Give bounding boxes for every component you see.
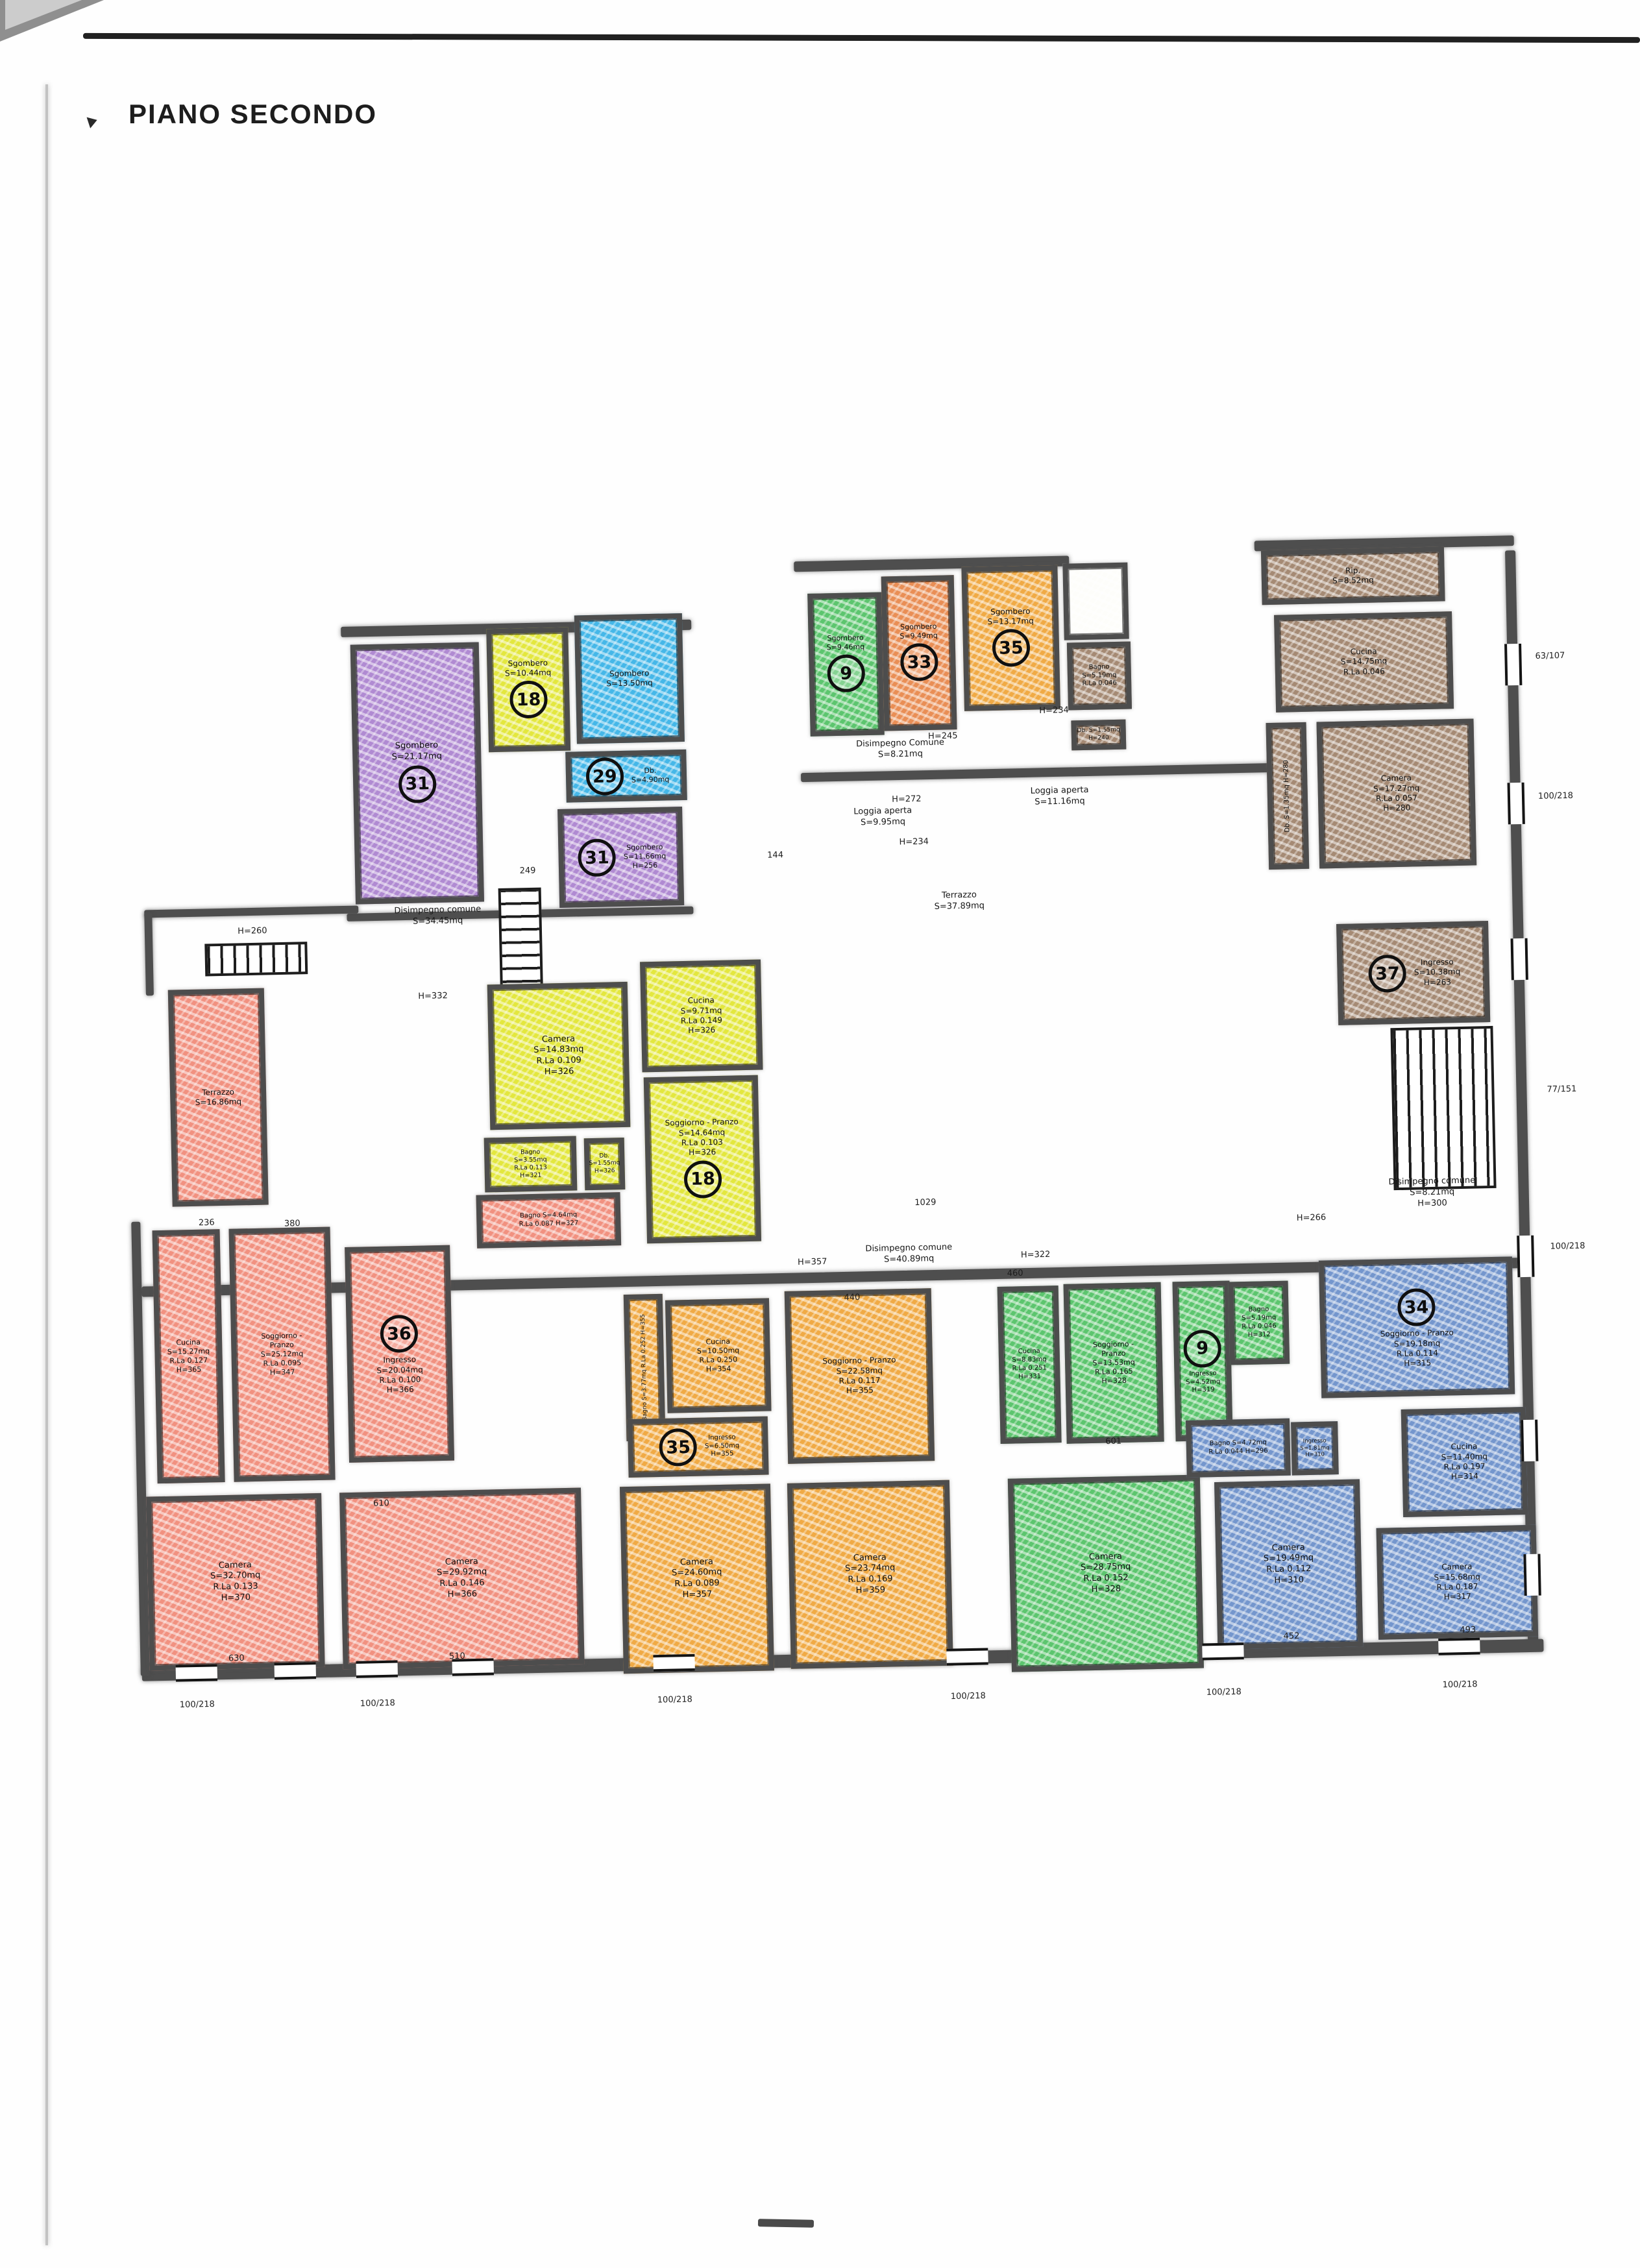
room-label: Soggiorno -PranzoS=13.53mqR.La 0.165H=32… [1092,1339,1136,1386]
room-camera-36-a: CameraS=32.70mqR.La 0.133H=370 [146,1493,325,1671]
room-sgombero-35: SgomberoS=13.17mq35 [961,565,1060,711]
dimension-label: H=260 [238,926,267,936]
room-camera-34-a: CameraS=19.49mqR.La 0.112H=310 [1214,1479,1363,1650]
window-marker [1523,1554,1541,1596]
room-label: CameraS=17.27mqR.La 0.057H=280 [1373,774,1421,814]
room-label: SgomberoS=9.49mq [900,622,938,641]
room-soggiorno-9: Soggiorno -PranzoS=13.53mqR.La 0.165H=32… [1064,1282,1164,1444]
room-ingresso-36: 36IngressoS=20.04mqR.La 0.100H=366 [345,1245,454,1463]
room-label: CucinaS=8.83mqR.La 0.251H=331 [1012,1348,1047,1382]
room-label: IngressoS=10.38mqH=263 [1414,957,1460,988]
room-label: SgomberoS=11.66mqH=256 [623,842,666,871]
dimension-label: 510 [449,1652,465,1662]
room-label: IngressoS=4.52mqH=319 [1186,1370,1221,1395]
room-ingresso-35: 35IngressoS=6.50mqH=355 [628,1416,769,1478]
room-camera-35-b: CameraS=23.74mqR.La 0.169H=359 [787,1480,953,1669]
room-sgombero-18: SgomberoS=10.44mq18 [486,628,570,753]
window-marker [176,1664,218,1681]
area-label-disimpegno-comune-centro: Disimpegno comuneS=40.89mq [834,1241,984,1267]
dimension-label: 460 [1007,1269,1023,1279]
room-label: CameraS=28.75mqR.La 0.152H=328 [1081,1552,1132,1596]
room-label: CameraS=23.74mqR.La 0.169H=359 [845,1552,896,1596]
unit-badge-31: 31 [398,765,437,803]
dimension-label: H=245 [928,731,958,742]
room-cucina-9: CucinaS=8.83mqR.La 0.251H=331 [997,1286,1062,1444]
room-db-sup: Db. S=1.55mqH=240 [1071,720,1126,751]
dimension-label: 380 [284,1219,300,1229]
dimension-label: 100/218 [1442,1679,1477,1690]
window-marker [946,1648,988,1665]
window-marker [1504,644,1522,686]
dimension-label: 100/218 [1538,791,1573,801]
dimension-label: H=272 [892,794,922,805]
window-marker [1508,783,1525,825]
dimension-label: H=266 [1297,1213,1327,1223]
room-bagno-9: BagnoS=5.19mqR.La 0.046H=312 [1229,1281,1290,1365]
unit-badge-18: 18 [509,681,548,719]
window-marker [1202,1642,1244,1660]
dimension-label: H=234 [1039,705,1069,716]
room-soggiorno-18: Soggiorno - PranzoS=14.64mqR.La 0.103H=3… [644,1075,761,1244]
stairs [1390,1026,1496,1190]
room-ingresso-37: 37IngressoS=10.38mqH=263 [1336,921,1490,1025]
room-soggiorno-36: Soggiorno -PranzoS=25.12mqR.La 0.095H=34… [228,1227,335,1482]
unit-badge-33: 33 [900,643,938,681]
area-label-terrazzo-centrale: TerrazzoS=37.89mq [901,889,1018,914]
room-label: Bagno S=4.64mqR.La 0.087 H=327 [519,1212,578,1230]
window-marker [1438,1638,1480,1655]
room-label: Bagno S=4.72mqR.La 0.044 H=296 [1208,1439,1268,1457]
room-camera-34-b: CameraS=15.68mqR.La 0.187H=317 [1377,1525,1539,1640]
dimension-label: 630 [228,1653,245,1664]
room-db-18: Db.S=1.55mqH=326 [584,1138,626,1190]
room-label: CucinaS=11.40mqR.La 0.197H=314 [1441,1442,1488,1483]
room-rip-37: Rip.S=8.52mq [1261,546,1445,605]
room-label: IngressoS=6.50mqH=355 [705,1433,740,1459]
room-label: CameraS=15.68mqR.La 0.187H=317 [1434,1562,1481,1603]
room-label: CucinaS=14.75mqR.La 0.046 [1340,646,1387,677]
room-camera-9: CameraS=28.75mqR.La 0.152H=328 [1008,1475,1204,1672]
room-bagno-34: Bagno S=4.72mqR.La 0.044 H=296 [1186,1419,1291,1478]
room-cucina-34: CucinaS=11.40mqR.La 0.197H=314 [1401,1407,1528,1517]
stairs [204,942,308,976]
room-label: Soggiorno - PranzoS=19.18mqR.La 0.114H=3… [1380,1328,1454,1370]
room-cucina-37: CucinaS=14.75mqR.La 0.046 [1274,611,1454,713]
dimension-label: 601 [1105,1437,1121,1447]
dimension-label: 452 [1283,1631,1299,1642]
window-marker [653,1654,695,1672]
window-marker [275,1662,317,1679]
room-bagno-18: BagnoS=3.55mqR.La 0.113H=321 [484,1136,578,1193]
unit-badge-31: 31 [578,838,616,877]
room-cucina-36: CucinaS=15.27mqR.La 0.127H=365 [153,1229,225,1483]
dimension-label: 100/218 [1206,1687,1242,1698]
room-label: CameraS=19.49mqR.La 0.112H=310 [1263,1542,1314,1587]
room-soggiorno-35: Soggiorno - PranzoS=22.58mqR.La 0.117H=3… [785,1288,935,1464]
window-marker [356,1660,398,1677]
room-label: IngressoS=1.81mqH=310 [1300,1437,1330,1459]
dimension-label: 236 [199,1218,215,1228]
room-label: SgomberoS=13.17mq [987,606,1034,627]
room-sgombero-29: SgomberoS=13.50mq [574,613,685,744]
unit-badge-18: 18 [683,1160,722,1199]
room-sgombero-31-piccolo: 31SgomberoS=11.66mqH=256 [557,807,684,908]
room-label: Db.S=1.55mqH=326 [589,1152,620,1176]
dimension-label: 100/218 [180,1700,215,1710]
dimension-label: 100/218 [951,1691,986,1701]
room-label: BagnoS=3.55mqR.La 0.113H=321 [514,1148,548,1180]
room-label: Db.S=4.90mq [631,766,670,785]
room-sgombero-9: SgomberoS=9.46mq9 [807,592,885,737]
room-ingresso-34: IngressoS=1.81mqH=310 [1291,1421,1339,1475]
room-terrazzo-ovest: TerrazzoS=16.86mq [168,988,269,1207]
room-bagno-36: Bagno S=4.64mqR.La 0.087 H=327 [476,1192,621,1249]
window-marker [1517,1236,1534,1278]
floor-plan: SgomberoS=21.17mq31SgomberoS=10.44mq18Sg… [0,0,1640,2268]
dimension-label: 63/107 [1535,651,1565,661]
room-label: Rip.S=8.52mq [1332,565,1374,586]
dimension-label: 1029 [914,1197,936,1208]
unit-badge-35: 35 [659,1428,698,1467]
dimension-label: H=322 [1021,1250,1051,1260]
dimension-label: 144 [767,850,783,860]
dimension-label: 610 [373,1498,389,1509]
room-cucina-18: CucinaS=9.71mqR.La 0.149H=326 [640,960,763,1073]
scanned-page: PIANO SECONDO SgomberoS=21.17mq31Sgomber… [0,0,1640,2268]
dimension-label: H=357 [798,1257,827,1267]
room-bagno-sup: BagnoS=5.19mqR.La 0.046 [1067,642,1132,711]
dimension-label: 100/218 [1550,1241,1585,1252]
dimension-label: H=234 [899,837,929,847]
room-sgombero-31-grande: SgomberoS=21.17mq31 [350,642,484,905]
dimension-label: 100/218 [360,1698,395,1709]
unit-badge-9: 9 [827,654,865,692]
room-db-29: 29Db.S=4.90mq [565,750,687,803]
wall-segment [801,762,1301,782]
unit-badge-34: 34 [1397,1288,1436,1326]
unit-badge-35: 35 [992,629,1030,667]
room-label: Soggiorno - PranzoS=22.58mqR.La 0.117H=3… [822,1356,896,1397]
room-label: CucinaS=9.71mqR.La 0.149H=326 [680,995,722,1036]
area-label-loggia-aperta-ovest: Loggia apertaS=9.95mq [814,805,951,829]
room-camera-18: CameraS=14.83mqR.La 0.109H=326 [487,982,631,1130]
room-camera-35-a: CameraS=24.60mqR.La 0.089H=357 [620,1483,774,1674]
room-label: IngressoS=20.04mqR.La 0.100H=366 [376,1355,424,1396]
room-locale-ac [1062,563,1129,640]
room-camera-36-b: CameraS=29.92mqR.La 0.146H=366 [339,1488,585,1670]
room-label: SgomberoS=9.46mq [826,633,864,652]
dimension-label: 249 [519,866,535,876]
room-label: CucinaS=15.27mqR.La 0.127H=365 [167,1337,210,1375]
dimension-label: 493 [1460,1625,1476,1635]
room-label: CameraS=29.92mqR.La 0.146H=366 [437,1556,488,1600]
window-marker [1521,1420,1538,1462]
room-label: CameraS=32.70mqR.La 0.133H=370 [210,1560,262,1604]
room-label: Bagno S=3.77mq R.La 0.252 H=355 [640,1314,650,1421]
room-soggiorno-34: 34Soggiorno - PranzoS=19.18mqR.La 0.114H… [1319,1256,1515,1398]
room-sgombero-33: SgomberoS=9.49mq33 [881,575,957,731]
area-label-disimpegno-comune-est: Disimpegno comuneS=8.21mqH=300 [1357,1175,1507,1211]
room-label: Db. S=1.35mq H=280 [1282,760,1292,833]
area-label-loggia-aperta-est: Loggia apertaS=11.16mq [988,785,1131,809]
room-label: CucinaS=10.50mqR.La 0.250H=354 [696,1337,740,1374]
window-marker [1511,938,1528,981]
room-cucina-35: CucinaS=10.50mqR.La 0.250H=354 [665,1298,772,1413]
unit-badge-36: 36 [380,1315,418,1353]
wall-segment [144,906,358,918]
dimension-label: 100/218 [657,1694,692,1705]
dimension-label: H=332 [418,991,448,1001]
room-label: BagnoS=5.19mqR.La 0.046H=312 [1242,1306,1277,1339]
room-label: Db. S=1.55mqH=240 [1077,727,1121,742]
room-label: SgomberoS=13.50mq [606,668,653,689]
wall-segment [144,912,154,995]
room-label: Soggiorno -PranzoS=25.12mqR.La 0.095H=34… [260,1331,304,1378]
room-label: SgomberoS=21.17mq [391,740,442,763]
room-label: Soggiorno - PranzoS=14.64mqR.La 0.103H=3… [665,1117,739,1159]
room-label: CameraS=24.60mqR.La 0.089H=357 [672,1557,723,1601]
unit-badge-29: 29 [585,757,624,796]
room-label: SgomberoS=10.44mq [505,658,552,679]
scan-bottom-mark [758,2219,814,2227]
dimension-label: 77/151 [1547,1084,1576,1095]
unit-badge-37: 37 [1368,955,1406,993]
area-label-disimpegno-comune-ovest: Disimpegno comuneS=34.45mq [353,903,522,929]
room-label: CameraS=14.83mqR.La 0.109H=326 [533,1034,585,1078]
room-db-37: Db. S=1.35mq H=280 [1266,722,1310,870]
room-label: BagnoS=5.19mqR.La 0.046 [1082,663,1117,689]
room-ingresso-9: 9IngressoS=4.52mqH=319 [1173,1281,1233,1442]
room-camera-37: CameraS=17.27mqR.La 0.057H=280 [1317,718,1477,868]
dimension-label: 440 [844,1293,860,1303]
room-label: TerrazzoS=16.86mq [195,1087,241,1108]
unit-badge-9: 9 [1183,1330,1221,1368]
